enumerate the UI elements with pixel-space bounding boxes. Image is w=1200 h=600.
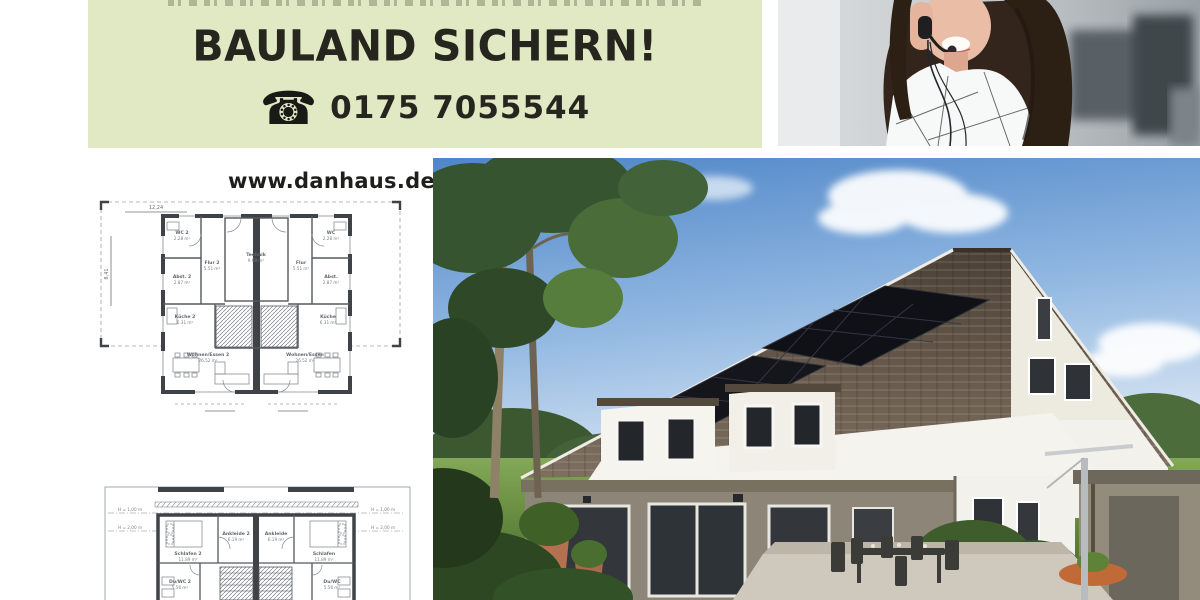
- room-schlafen-area: 11.89 m²: [314, 557, 333, 562]
- height-line-1-left: H = 1,00 m: [118, 507, 142, 512]
- room-wohnen2-area: 26.52 m²: [198, 358, 217, 363]
- room-duwc2-area: 5.56 m²: [172, 585, 189, 590]
- room-ankleide2-area: 6.19 m²: [228, 537, 245, 542]
- house-photo: [433, 158, 1200, 600]
- clipped-headline-fragment: [168, 0, 708, 6]
- real-estate-ad: BAULAND SICHERN! ☎ 0175 7055544: [0, 0, 1200, 600]
- room-abst-area: 2.87 m²: [323, 280, 340, 285]
- room-flur-area: 5.51 m²: [293, 266, 310, 271]
- height-line-2-right: H = 2,00 m: [371, 525, 395, 530]
- room-kueche2-area: 6.31 m²: [177, 320, 194, 325]
- phone-row[interactable]: ☎ 0175 7055544: [88, 86, 762, 130]
- banner-headline: BAULAND SICHERN!: [88, 21, 762, 71]
- room-kueche-area: 6.31 m²: [320, 320, 337, 325]
- room-wc2-area: 2.28 m²: [174, 236, 191, 241]
- agent-photo: [778, 0, 1200, 146]
- room-duwc-area: 5.56 m²: [324, 585, 341, 590]
- room-technik-area: 9.69 m²: [248, 258, 265, 263]
- dim-width-label: 12,24: [149, 205, 163, 211]
- room-flur2-area: 5.51 m²: [204, 266, 221, 271]
- website-link[interactable]: www.danhaus.de: [228, 169, 435, 193]
- dim-depth-label: 8,41: [104, 268, 110, 279]
- upper-floor-drawing: H = 1,00 m H = 1,00 m H = 2,00 m H = 2,0…: [100, 485, 425, 600]
- height-line-2-left: H = 2,00 m: [118, 525, 142, 530]
- room-wohnen-area: 26.52 m²: [295, 358, 314, 363]
- woman-with-headset-illustration: [778, 0, 1200, 146]
- room-wc-area: 2.28 m²: [323, 236, 340, 241]
- rotary-phone-icon: ☎: [260, 86, 317, 130]
- room-schlafen2-area: 11.89 m²: [178, 557, 197, 562]
- room-abst2-area: 2.87 m²: [174, 280, 191, 285]
- promo-banner: BAULAND SICHERN! ☎ 0175 7055544: [88, 0, 762, 148]
- room-ankleide-area: 6.19 m²: [268, 537, 285, 542]
- ground-floor-drawing: 12,24 8,41: [95, 196, 425, 418]
- floorplan-upper: H = 1,00 m H = 1,00 m H = 2,00 m H = 2,0…: [100, 485, 425, 600]
- height-line-1-right: H = 1,00 m: [371, 507, 395, 512]
- floorplan-ground: 12,24 8,41: [95, 196, 425, 418]
- phone-number[interactable]: 0175 7055544: [330, 90, 590, 126]
- house-exterior-illustration: [433, 158, 1200, 600]
